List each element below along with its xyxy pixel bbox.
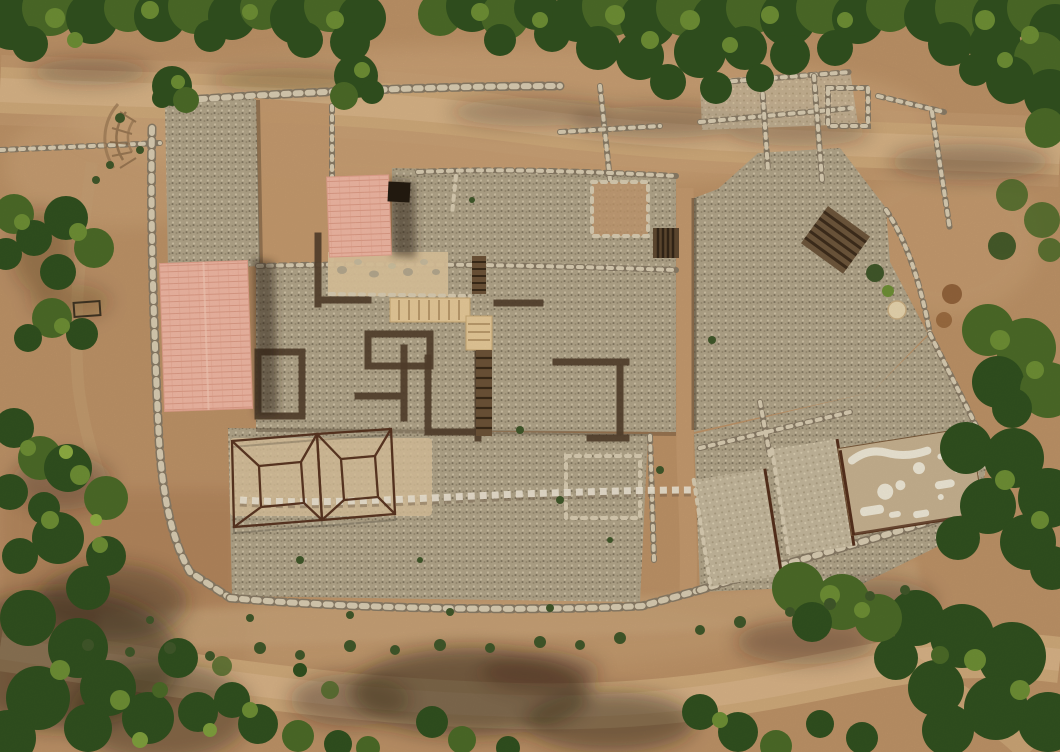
aerial-photo-archaeological-site (0, 0, 1060, 752)
scene-canvas (0, 0, 1060, 752)
photo-grain-overlay (0, 0, 1060, 752)
